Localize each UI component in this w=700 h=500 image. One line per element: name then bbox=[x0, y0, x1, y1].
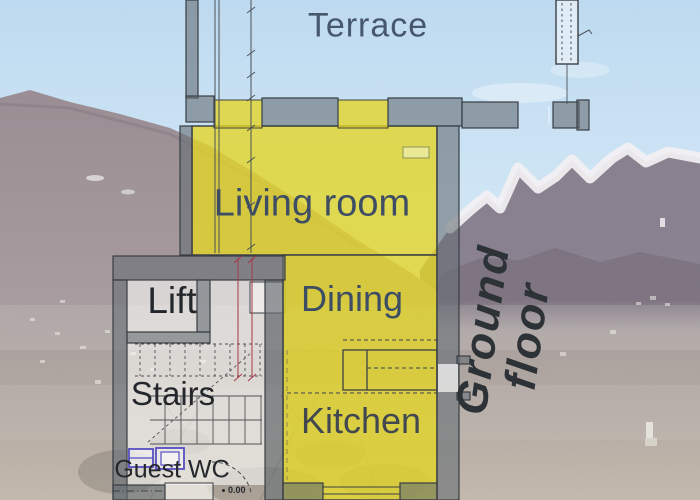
annex-west-wall bbox=[113, 280, 127, 500]
scene-canvas bbox=[0, 0, 700, 500]
lift-south-wall bbox=[127, 332, 210, 343]
terrace-corner-wall bbox=[186, 96, 214, 122]
dining-west-wall bbox=[265, 280, 283, 500]
bottom-door-leaf bbox=[165, 483, 213, 500]
terrace-left-wall bbox=[186, 0, 198, 98]
mountain-speck bbox=[660, 218, 665, 227]
kitchen-south-wall bbox=[400, 483, 437, 500]
terrace-door-opening bbox=[214, 100, 262, 128]
east-wall-tab bbox=[457, 356, 470, 364]
dining-kitchen-area bbox=[283, 255, 437, 500]
east-wall-tab bbox=[457, 392, 470, 400]
east-wall-opening bbox=[438, 364, 458, 392]
living-west-wall bbox=[180, 126, 192, 255]
lift-east-wall bbox=[197, 280, 210, 332]
plan-tag bbox=[403, 147, 429, 158]
east-wall bbox=[437, 126, 459, 500]
kitchen-south-wall bbox=[283, 483, 323, 500]
terrace-south-wall bbox=[262, 98, 338, 126]
terrace-south-wall bbox=[388, 98, 462, 126]
snow-patch bbox=[86, 175, 104, 181]
wc-fixtures bbox=[129, 448, 184, 469]
sink-icon bbox=[129, 449, 153, 467]
annex-north-wall bbox=[113, 256, 285, 280]
terrace-south-wall bbox=[553, 102, 579, 128]
terrace-door-opening bbox=[338, 100, 388, 128]
living-room-area bbox=[192, 126, 437, 255]
floorplan-over-photo: Terrace Living room Dining Kitchen Lift … bbox=[0, 0, 700, 500]
snow-patch bbox=[121, 190, 135, 195]
terrace-south-wall bbox=[462, 102, 518, 128]
terrace-wall-end bbox=[577, 100, 589, 130]
toilet-icon bbox=[156, 448, 184, 469]
cloud bbox=[472, 83, 568, 103]
annex-south-wall bbox=[113, 485, 165, 500]
